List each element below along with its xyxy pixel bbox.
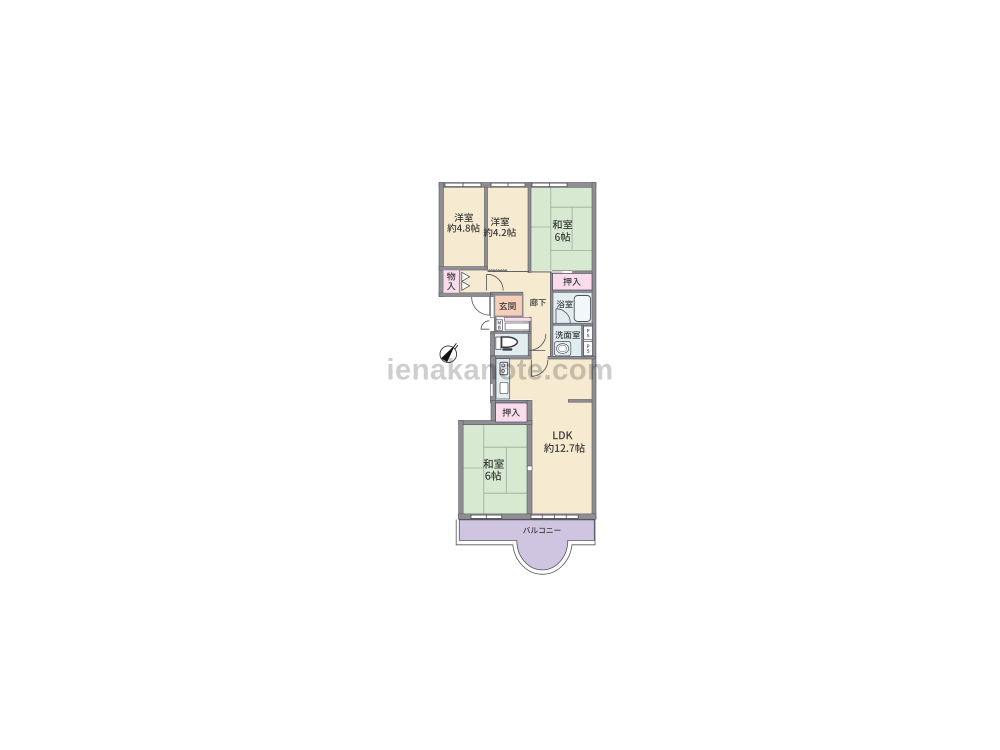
svg-text:ienakanote.com: ienakanote.com [386,354,613,387]
